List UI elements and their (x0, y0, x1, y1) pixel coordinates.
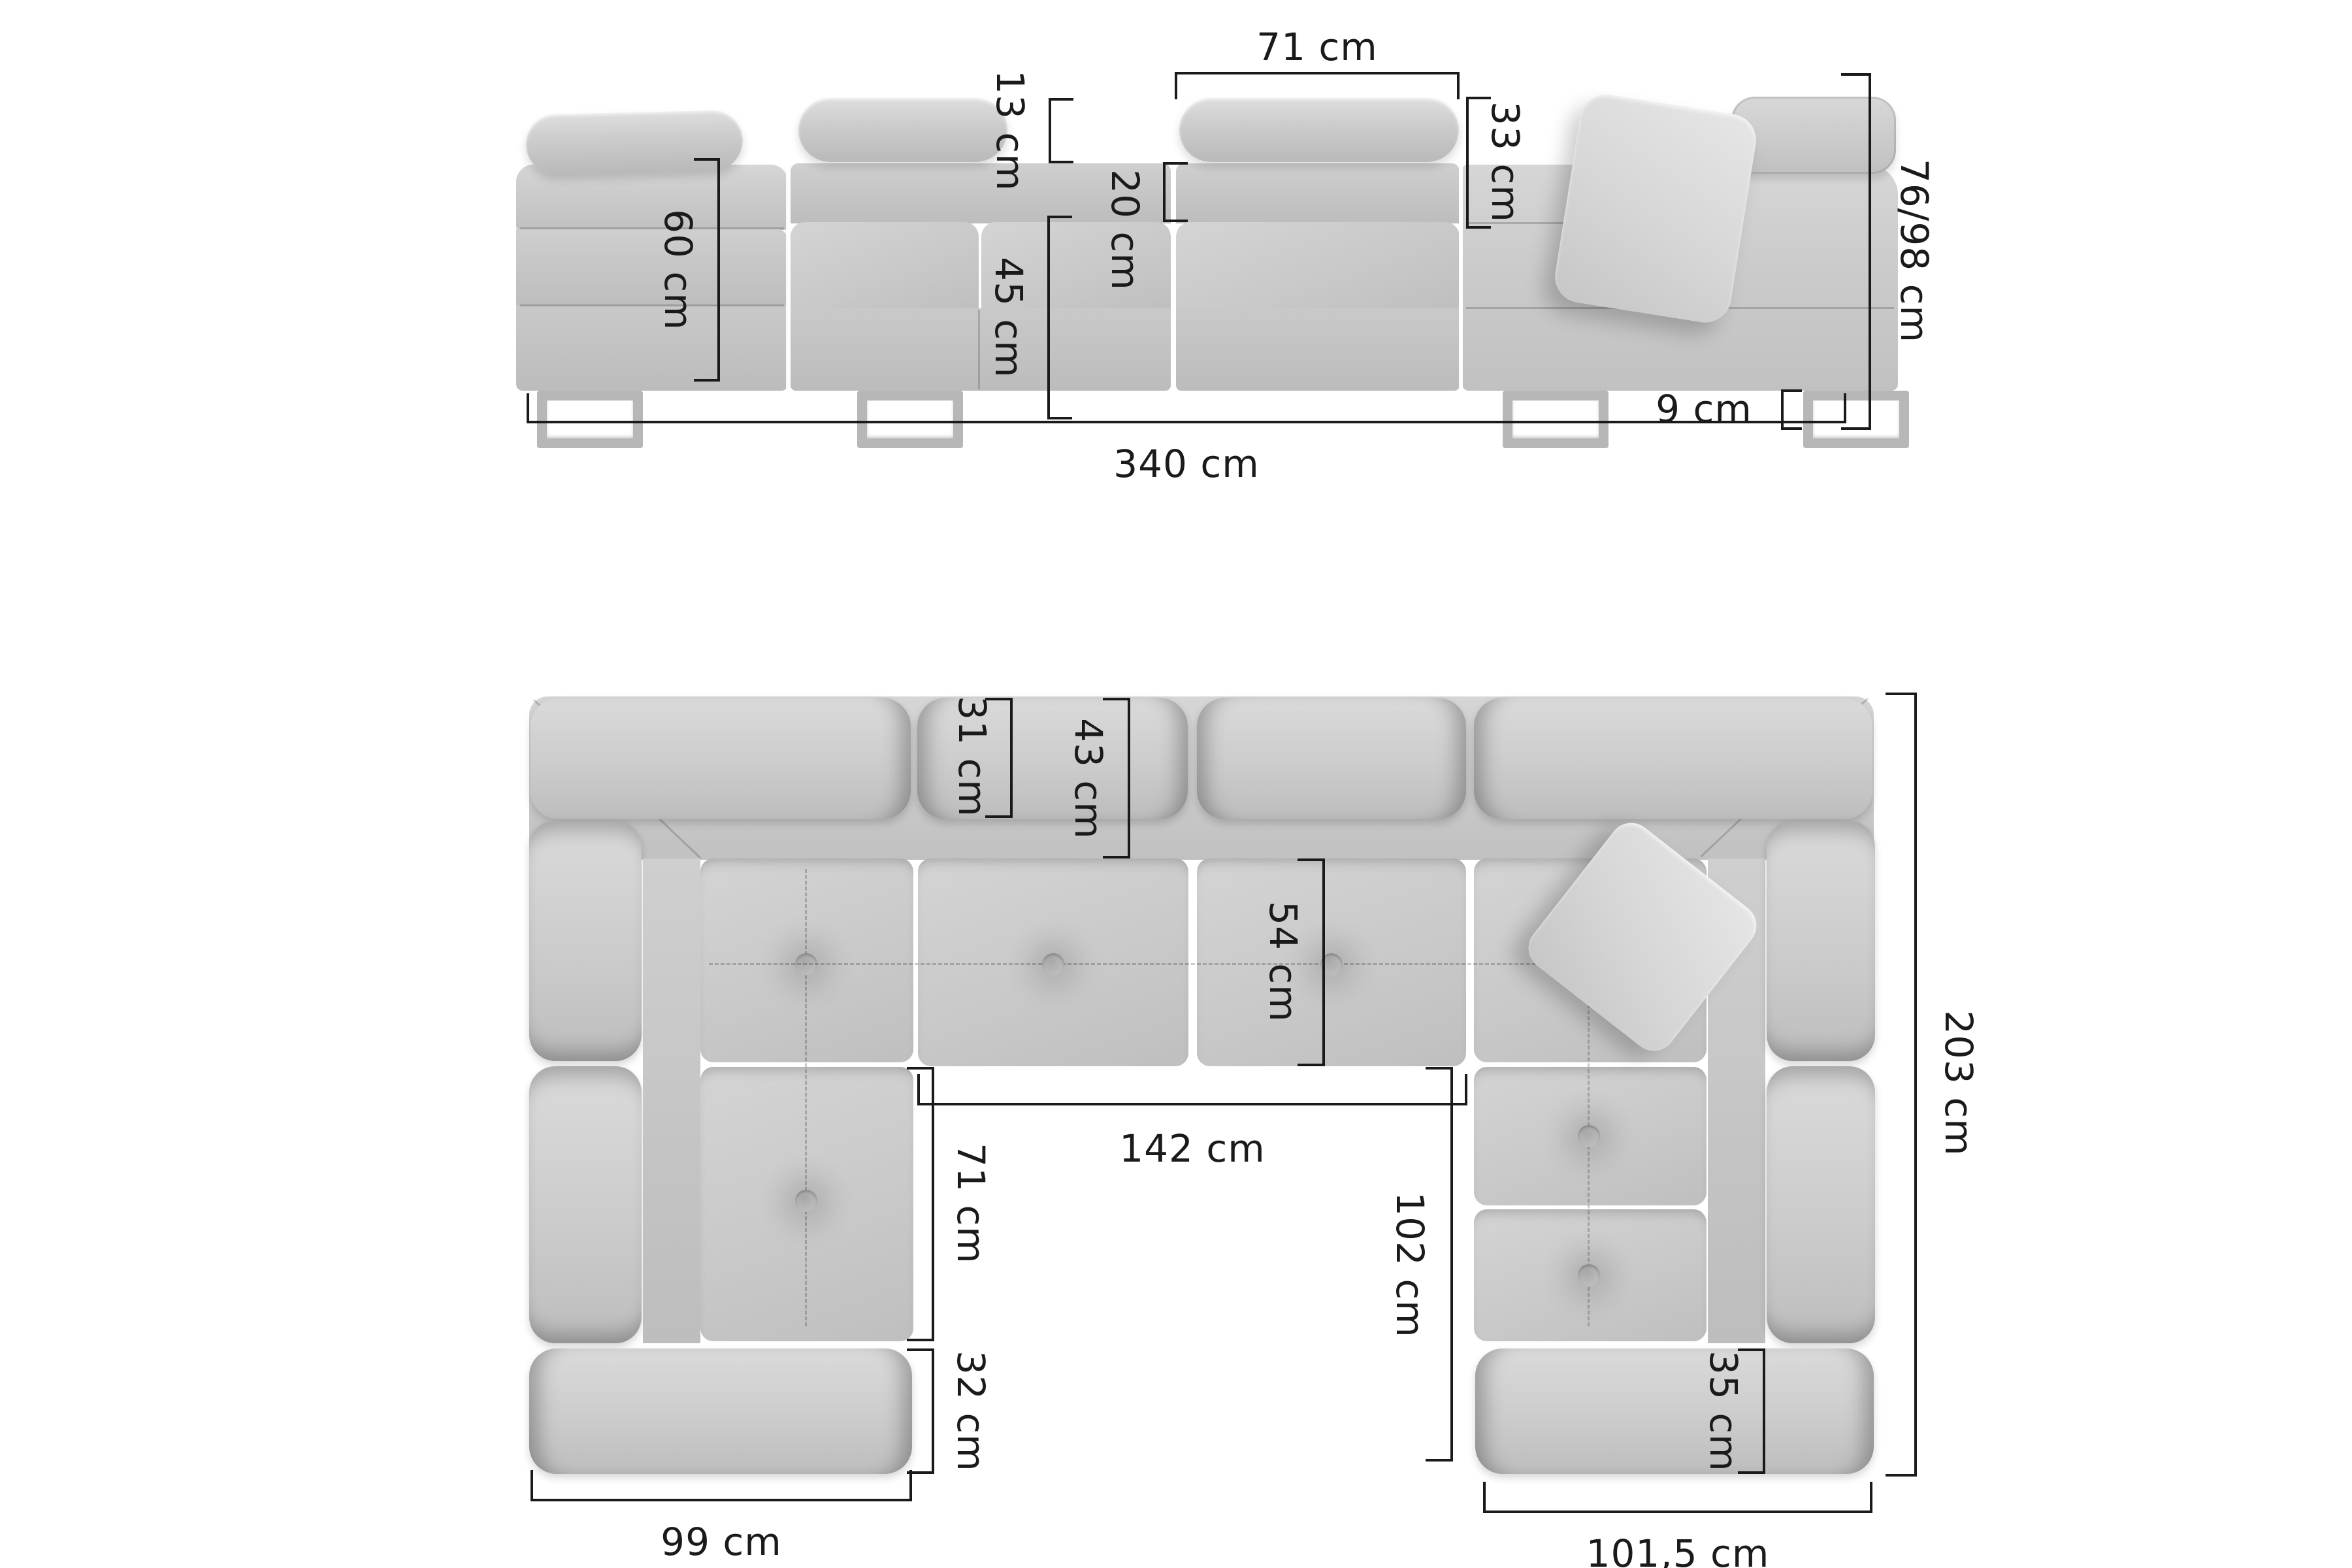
dim-label-seat-depth: 54 cm (1261, 901, 1305, 1022)
dim-tick (1466, 97, 1491, 99)
dim-tick (531, 1470, 533, 1501)
front-left-section-mid-band (516, 229, 788, 307)
dim-line-arm-end-height (717, 158, 720, 382)
dim-label-right-wing-width: 101,5 cm (1586, 1531, 1770, 1568)
dim-label-headrest-height: 13 cm (988, 70, 1032, 191)
dim-line-backrest-top (1163, 162, 1166, 222)
dim-label-inner-width: 142 cm (1119, 1126, 1266, 1171)
front-left-section-front-panel (516, 306, 788, 391)
dim-line-backrest-depth (1128, 698, 1130, 858)
plan-left-seat-crease (805, 869, 807, 1326)
sofa-leg-2 (857, 391, 963, 448)
dim-line-total-width (527, 421, 1846, 423)
dim-line-ottoman-depth (932, 1348, 934, 1474)
diagram-canvas: 71 cm 13 cm 20 cm 33 cm 60 cm 45 cm 9 cm (0, 0, 2352, 1568)
dim-line-corner-block-depth (1763, 1348, 1765, 1474)
dim-label-total-height: 76/98 cm (1892, 159, 1936, 343)
dim-tick (917, 1074, 920, 1105)
dim-tick (694, 158, 720, 161)
tufting-button (795, 1190, 817, 1212)
front-midleft-base-seam (978, 310, 980, 389)
dim-line-left-wing-width (531, 1499, 912, 1501)
sofa-leg-1 (537, 391, 643, 448)
dim-tick (1466, 226, 1491, 229)
front-midleft-seat-cushion-a (791, 222, 979, 310)
dim-line-leg-height (1781, 389, 1784, 430)
dim-line-inner-width (917, 1103, 1467, 1105)
dim-label-backrest-depth: 43 cm (1066, 718, 1111, 840)
plan-right-bolster-upper (1767, 821, 1875, 1061)
headrest-roll-left (525, 110, 743, 175)
dim-tick (1457, 72, 1460, 99)
front-left-section-top-band (516, 165, 788, 230)
dim-label-total-depth: 203 cm (1936, 1010, 1981, 1156)
dim-line-headrest-height (1049, 98, 1051, 163)
dim-label-leg-height: 9 cm (1656, 387, 1752, 431)
decor-pillow-front (1551, 91, 1759, 327)
dim-tick (1298, 1064, 1325, 1066)
dim-label-back-cushion-depth: 31 cm (950, 696, 994, 817)
dim-tick (1426, 1459, 1453, 1462)
dim-line-total-height (1869, 73, 1871, 430)
dim-label-ottoman-depth: 32 cm (949, 1350, 993, 1472)
dim-tick (907, 1348, 934, 1351)
dim-label-corner-block-depth: 35 cm (1701, 1350, 1746, 1472)
dim-tick (1781, 389, 1802, 392)
front-left-seam-upper (520, 227, 784, 229)
dim-tick (1886, 1474, 1917, 1477)
dim-tick (1049, 98, 1073, 101)
front-midright-backrest (1176, 163, 1460, 223)
dim-label-right-seat-length: 102 cm (1388, 1192, 1432, 1338)
plan-right-corner-block (1475, 1348, 1874, 1474)
plan-back-cushion-1 (531, 698, 911, 819)
dim-label-seat-height: 45 cm (987, 257, 1031, 378)
dim-tick (907, 1339, 934, 1341)
dim-tick (694, 379, 720, 382)
dim-tick (1465, 1074, 1467, 1105)
plan-right-bolster-lower (1767, 1066, 1875, 1343)
dim-tick (527, 393, 529, 422)
dim-label-left-seat-length: 71 cm (949, 1143, 993, 1264)
dim-tick (1047, 417, 1072, 419)
dim-tick (1841, 73, 1871, 76)
headrest-roll-midright (1179, 98, 1459, 162)
dim-tick (1870, 1482, 1872, 1513)
dim-tick (907, 1067, 934, 1070)
dim-tick (1844, 393, 1846, 422)
front-midright-base (1176, 308, 1460, 391)
front-view: 71 cm 13 cm 20 cm 33 cm 60 cm 45 cm 9 cm (0, 0, 2352, 497)
dim-tick (1103, 698, 1130, 700)
dim-label-backrest-top: 20 cm (1103, 169, 1147, 291)
dim-tick (1841, 427, 1871, 430)
plan-left-ottoman (529, 1348, 912, 1474)
dim-line-headrest-width (1175, 72, 1460, 74)
dim-tick (1103, 856, 1130, 858)
dim-tick (1163, 220, 1188, 222)
dim-line-total-depth (1914, 693, 1917, 1477)
dim-label-backrest-height: 33 cm (1483, 101, 1527, 223)
dim-tick (1163, 162, 1188, 165)
plan-left-arm-band (643, 858, 700, 1343)
plan-back-cushion-4 (1474, 698, 1872, 819)
dim-line-left-seat-length (932, 1067, 934, 1341)
dim-label-headrest-width: 71 cm (1256, 25, 1378, 69)
dim-line-right-wing-width (1483, 1511, 1872, 1513)
dim-tick (1047, 216, 1072, 218)
dim-tick (1175, 72, 1177, 99)
headrest-pad-right (1731, 97, 1896, 174)
dim-tick (1049, 161, 1073, 163)
dim-tick (1886, 693, 1917, 695)
dim-label-total-width: 340 cm (1113, 442, 1260, 486)
top-view: 31 cm 43 cm 54 cm 142 cm 71 cm 32 cm 99 … (0, 497, 2352, 1568)
dim-tick (1781, 427, 1802, 430)
dim-tick (1298, 858, 1325, 861)
front-left-seam-lower (520, 304, 784, 306)
front-midleft-base (791, 308, 1171, 391)
headrest-roll-midleft (798, 98, 1007, 162)
sofa-leg-3 (1503, 391, 1609, 448)
front-midright-seat-cushion (1176, 222, 1460, 310)
tufting-button (1042, 953, 1064, 975)
front-section-gap-2 (1171, 165, 1175, 391)
tufting-button (1578, 1264, 1600, 1286)
plan-back-cushion-3 (1197, 698, 1466, 819)
front-section-gap-3 (1459, 165, 1463, 391)
dim-tick (1483, 1482, 1486, 1513)
dim-label-left-wing-width: 99 cm (661, 1520, 782, 1564)
dim-tick (1426, 1067, 1453, 1070)
plan-left-bolster-lower (529, 1066, 642, 1343)
dim-line-backrest-height (1466, 97, 1469, 229)
dim-line-right-seat-length (1450, 1067, 1453, 1462)
dim-line-seat-height (1047, 216, 1050, 419)
front-section-gap-1 (786, 165, 790, 391)
dim-label-arm-end-height: 60 cm (656, 209, 700, 331)
dim-line-back-cushion-depth (1010, 698, 1013, 818)
dim-tick (909, 1470, 912, 1501)
plan-left-bolster-upper (529, 821, 642, 1061)
dim-line-seat-depth (1322, 858, 1325, 1066)
tufting-button (1578, 1125, 1600, 1147)
sofa-leg-4 (1803, 391, 1909, 448)
